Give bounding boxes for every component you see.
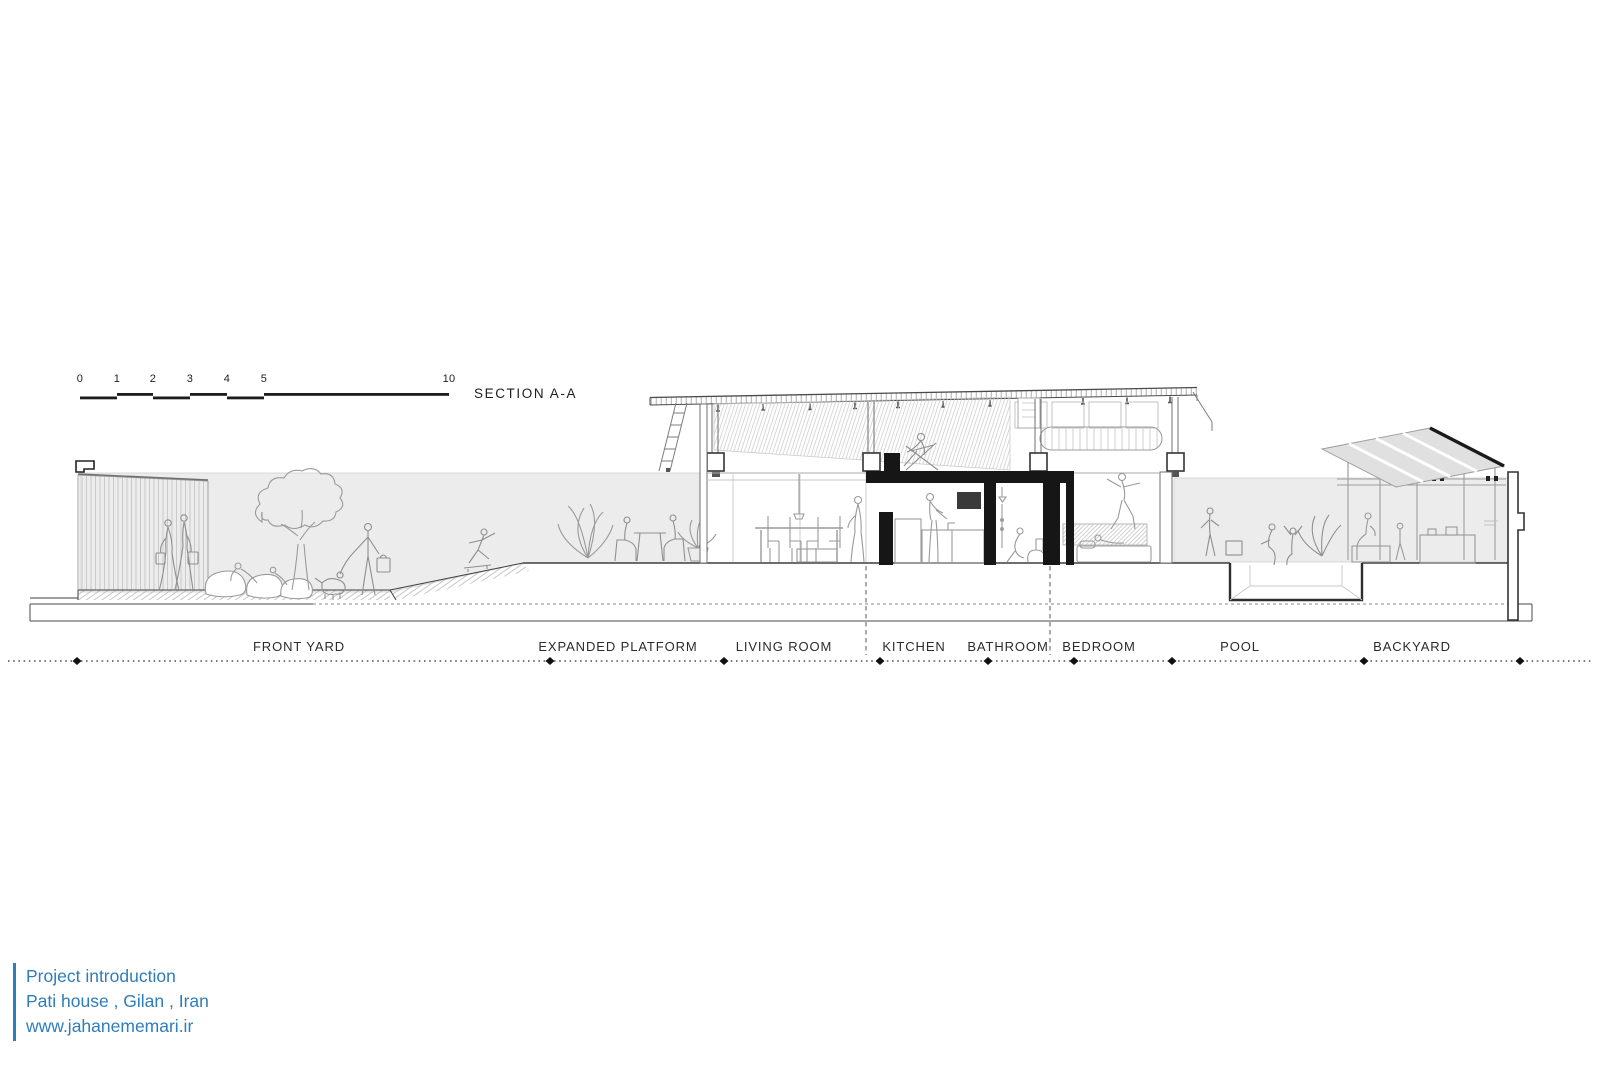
air-duct [1018,398,1162,450]
project-accent-bar [13,963,16,1041]
boundary-wall [1508,472,1524,620]
zone-label-backyard: BACKYARD [1373,639,1451,654]
zone-label-front-yard: FRONT YARD [253,639,345,654]
living-room [707,474,866,562]
scale-tick-5: 5 [261,373,267,385]
sheet: 0 1 2 3 4 5 10 SECTION A-A FRONT YARD EX… [0,0,1600,1067]
pool-basin [1230,563,1362,600]
bedroom [1063,474,1151,563]
drawing-title: SECTION A-A [474,386,577,401]
zone-label-bedroom: BEDROOM [1062,639,1135,654]
gate-lamp-icon [76,461,94,472]
scale-tick-0: 0 [77,373,83,385]
zone-line [8,657,1592,665]
scale-tick-1: 1 [114,373,120,385]
scale-tick-3: 3 [187,373,193,385]
front-fence [76,461,208,590]
zone-label-bathroom: BATHROOM [967,639,1048,654]
kitchen [895,492,984,563]
zone-label-living-room: LIVING ROOM [736,639,833,654]
zone-label-expanded-platform: EXPANDED PLATFORM [538,639,697,654]
scale-tick-2: 2 [150,373,156,385]
eave-ladder [659,403,687,472]
project-name: Pati house , Gilan , Iran [26,989,209,1014]
section-drawing [0,0,1600,1067]
zone-label-pool: POOL [1220,639,1260,654]
ceiling-hatch [714,397,1010,470]
project-intro: Project introduction [26,964,176,989]
scale-bar [80,393,449,399]
bathroom [999,487,1044,562]
scale-tick-10: 10 [443,373,456,385]
zone-label-kitchen: KITCHEN [882,639,945,654]
project-website: www.jahanememari.ir [26,1014,193,1039]
scale-tick-4: 4 [224,373,230,385]
